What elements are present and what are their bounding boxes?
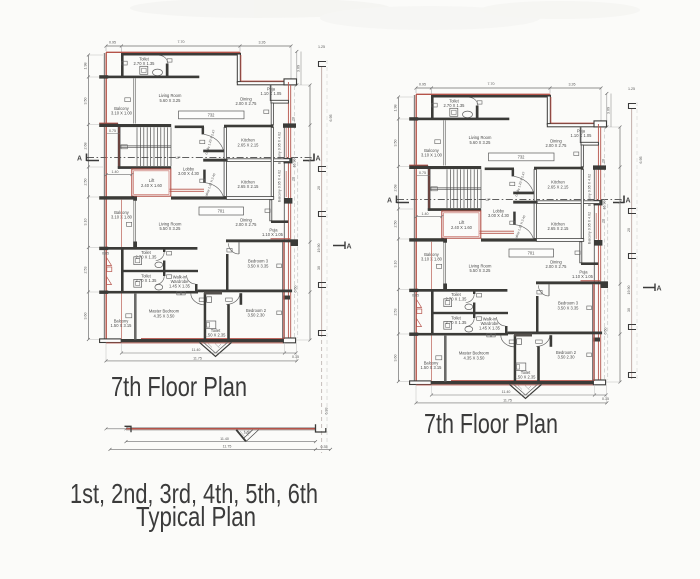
svg-text:11.40: 11.40 bbox=[220, 437, 229, 441]
svg-text:Typical Plan: Typical Plan bbox=[136, 501, 256, 532]
svg-text:11.75: 11.75 bbox=[223, 445, 232, 449]
svg-text:6.93: 6.93 bbox=[325, 408, 329, 415]
svg-text:0.35: 0.35 bbox=[321, 445, 328, 449]
svg-text:7th Floor Plan: 7th Floor Plan bbox=[424, 408, 558, 439]
svg-text:7th Floor Plan: 7th Floor Plan bbox=[111, 371, 247, 402]
svg-text:1.30: 1.30 bbox=[244, 430, 251, 434]
